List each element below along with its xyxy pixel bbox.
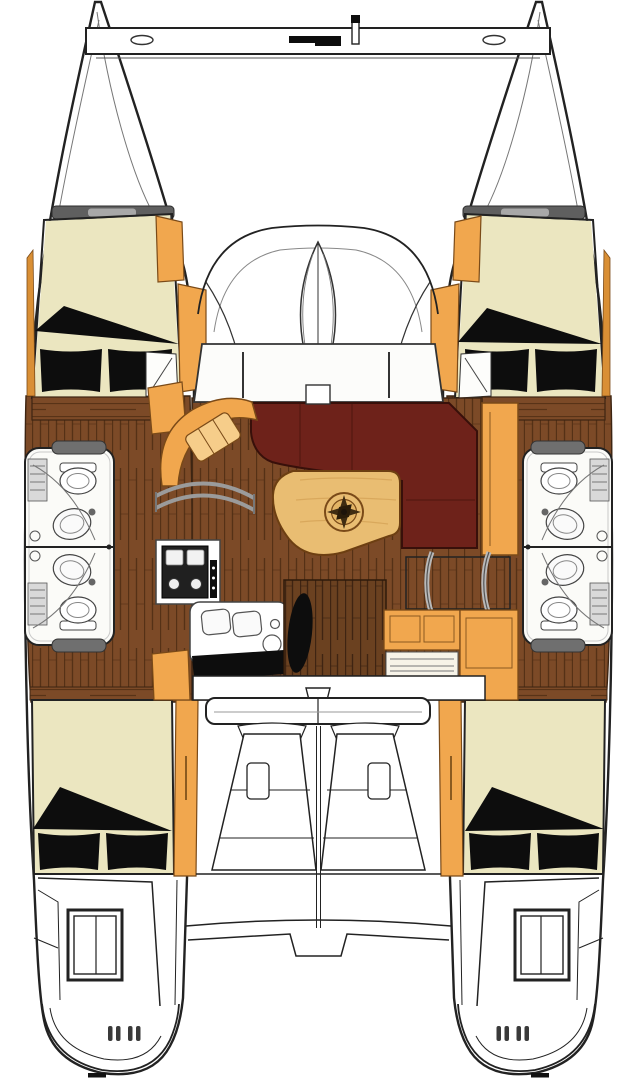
companionway-steps — [406, 552, 510, 614]
toilet — [60, 463, 96, 494]
compass-rose — [325, 493, 363, 531]
port-aft-cabin — [30, 687, 198, 876]
cockpit-hatch — [247, 763, 269, 799]
cabin-floor-step — [32, 397, 155, 420]
aft-beam-edge — [186, 920, 451, 926]
sink-bowl — [201, 609, 231, 636]
cockpit-sill — [193, 676, 485, 700]
drawer-stack — [386, 652, 458, 676]
stove-knob — [169, 579, 180, 590]
stove-knob — [191, 579, 202, 590]
faucet — [89, 579, 96, 586]
cockpit-seat-starboard — [321, 723, 425, 870]
companionway-door-block — [284, 580, 386, 676]
pillow — [40, 349, 102, 392]
head-bulkhead-cap — [52, 639, 106, 652]
pillow — [38, 833, 100, 870]
faucet — [89, 509, 96, 516]
cleat — [483, 36, 505, 45]
hull-side-trim — [27, 250, 35, 396]
transom-mark — [88, 1073, 106, 1078]
sink-bowl — [232, 611, 262, 638]
burner — [166, 550, 183, 565]
aft-cabin-shelf — [30, 687, 162, 700]
burner — [187, 550, 204, 565]
cockpit-seat-port — [212, 723, 316, 870]
port-head — [25, 441, 114, 652]
floor-plan-drawing — [0, 0, 637, 1080]
mast-step-notch — [306, 385, 330, 404]
pillow — [106, 833, 168, 870]
crossbeam — [86, 15, 550, 58]
aft-walkway-edge — [188, 934, 449, 956]
wardrobe-wedge — [156, 216, 184, 282]
divider-pin — [107, 545, 112, 550]
cockpit-hatch — [368, 763, 390, 799]
cleat — [131, 36, 153, 45]
galley-end-cabinet — [152, 650, 190, 700]
transom-window — [68, 910, 122, 980]
galley-stove — [156, 540, 220, 604]
forestay-fitting — [351, 15, 360, 44]
tall-cabinet — [482, 403, 518, 555]
bowsprit-fitting-step — [315, 41, 341, 46]
head-bulkhead-cap — [52, 441, 106, 454]
catamaran-floor-plan — [0, 0, 637, 1080]
